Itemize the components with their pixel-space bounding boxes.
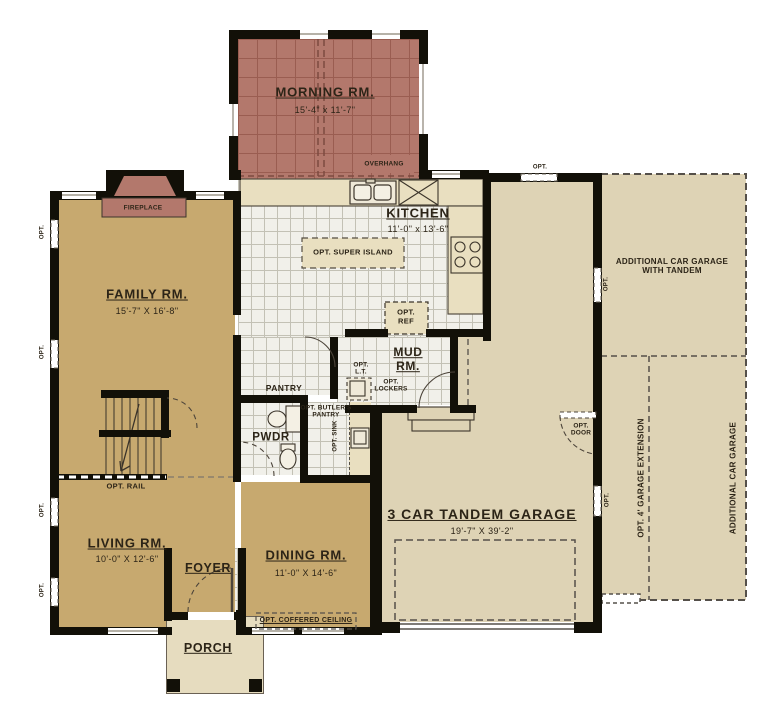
butlers-pantry-label: OPT. BUTLER'S PANTRY [300, 405, 352, 420]
garage-extension-label: OPT. 4' GARAGE EXTENSION [636, 418, 645, 537]
opt-ref-label: OPT. REF [391, 308, 421, 325]
foyer-label: FOYER [185, 561, 231, 575]
floor-plan: MORNING RM. 15'-4" x 11'-7" OVERHANG KIT… [0, 0, 779, 720]
opt-rail-label: OPT. RAIL [107, 483, 146, 492]
family-room-dims: 15'-7" X 16'-8" [116, 306, 179, 316]
porch-label: PORCH [184, 641, 232, 655]
morning-room-dims: 15'-4" x 11'-7" [295, 105, 356, 115]
garage-dims: 19'-7" X 39'-2" [451, 526, 514, 536]
garage-label: 3 CAR TANDEM GARAGE [387, 506, 576, 522]
mud-room-label: MUD RM. [384, 346, 432, 374]
garage-door [400, 624, 574, 629]
dining-room-label: DINING RM. [266, 549, 347, 564]
opt-lockers-label: OPT. LOCKERS [370, 379, 412, 394]
garage-door-header [395, 540, 575, 620]
opt-rail-line [55, 474, 236, 480]
morning-room-label: MORNING RM. [275, 86, 374, 101]
living-room-dims: 10'-0" X 12'-6" [96, 554, 159, 564]
overhang-label: OVERHANG [364, 160, 403, 167]
fireplace-label: FIREPLACE [124, 204, 163, 211]
family-room-label: FAMILY RM. [106, 288, 188, 303]
additional-garage-tandem-label: ADDITIONAL CAR GARAGE WITH TANDEM [606, 257, 738, 275]
garage-extension-outline [601, 174, 746, 603]
pwdr-label: PWDR [252, 431, 290, 444]
kitchen-label: KITCHEN [386, 207, 449, 222]
additional-car-garage-label: ADDITIONAL CAR GARAGE [728, 422, 737, 534]
opt-marker-living-window-2: OPT. [40, 583, 47, 597]
opt-coffered-ceiling-label: OPT. COFFERED CEILING [260, 617, 353, 625]
opt-marker-family-window-1: OPT. [40, 225, 47, 239]
opt-lt-label: OPT. L.T. [348, 362, 374, 377]
opt-marker-garage-window-1: OPT. [604, 277, 611, 291]
opt-sink-box [351, 428, 369, 448]
dining-room-dims: 11'-0" X 14'-6" [275, 568, 337, 578]
opt-marker-garage-top: OPT. [533, 165, 547, 172]
opt-marker-family-window-2: OPT. [40, 345, 47, 359]
opt-marker-living-window-1: OPT. [40, 503, 47, 517]
opt-door-label: OPT. DOOR [564, 423, 598, 438]
opt-marker-garage-window-2: OPT. [605, 493, 612, 507]
living-room-label: LIVING RM. [88, 537, 167, 552]
pantry-label: PANTRY [266, 384, 302, 394]
kitchen-sink [350, 179, 396, 204]
porch-columns [167, 679, 262, 692]
opt-laundry-tub-box [347, 378, 371, 400]
opt-super-island-label: OPT. SUPER ISLAND [313, 249, 393, 258]
opt-sink-label: OPT. SINK [333, 420, 340, 451]
kitchen-dims: 11'-0" x 13'-6" [388, 224, 449, 234]
